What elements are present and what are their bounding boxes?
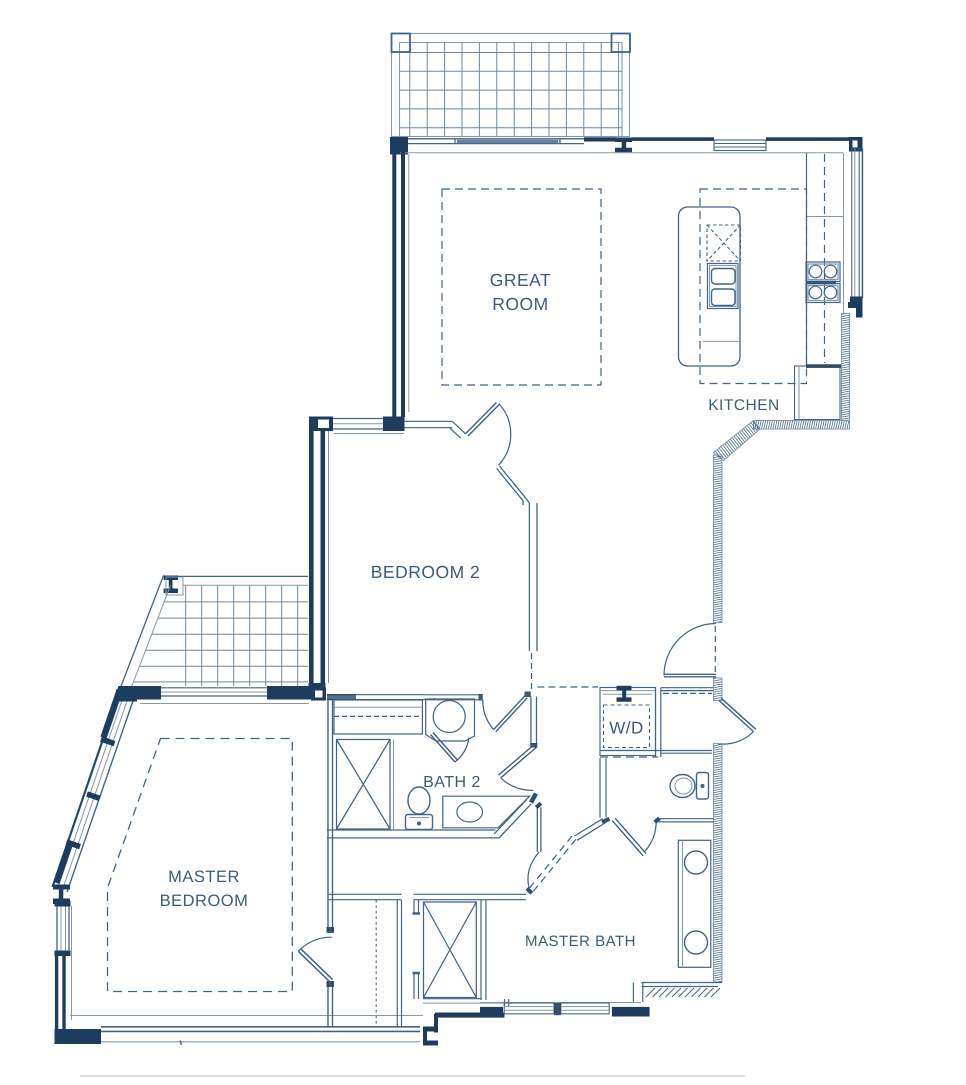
- svg-text:MASTER BATH: MASTER BATH: [525, 933, 636, 950]
- svg-text:BEDROOM 2: BEDROOM 2: [371, 562, 481, 582]
- svg-text:ROOM: ROOM: [492, 294, 548, 314]
- svg-text:MASTER: MASTER: [168, 868, 240, 886]
- svg-text:BATH 2: BATH 2: [423, 774, 481, 791]
- svg-text:BEDROOM: BEDROOM: [160, 892, 249, 910]
- svg-text:GREAT: GREAT: [490, 270, 552, 290]
- svg-text:KITCHEN: KITCHEN: [708, 397, 780, 414]
- svg-text:W/D: W/D: [609, 718, 644, 737]
